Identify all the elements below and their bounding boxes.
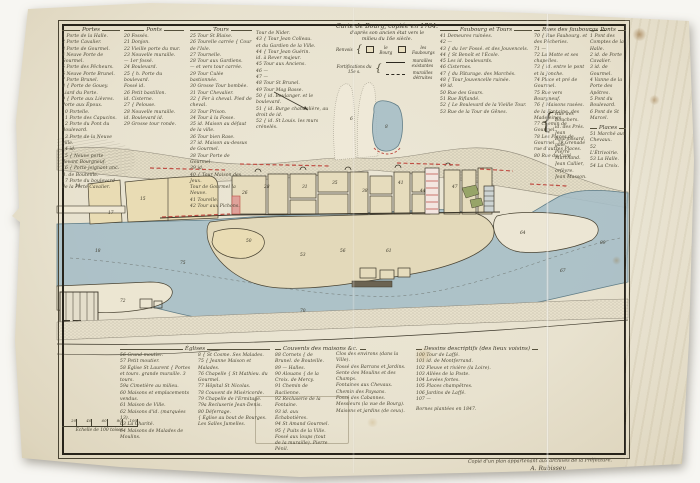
legend-item: 60 Maisons et emplacements vendus. (120, 391, 192, 404)
legend-header: Rues des faubourgs (534, 27, 588, 34)
bourg-swatch (366, 46, 374, 53)
pond (373, 101, 403, 154)
sand-spit (207, 212, 494, 288)
legend-item: 5 Porte des Pêcheurs. (62, 65, 120, 71)
map-number-label: 53 (300, 254, 306, 258)
legend-item: Sente des Moulins et des Champs. (336, 371, 412, 384)
dashed-line-sample (386, 74, 406, 75)
legend-item: 29 Tour Culée bastionnée. (190, 72, 252, 85)
legend-item: 4 Neuve Porte de Gourmel. (62, 53, 120, 66)
legend-item: 74 Place et pré de Gourmel. (534, 78, 588, 91)
map-number-label: 8 (385, 126, 388, 130)
legend-item: 100 (123, 419, 138, 426)
legend-item: Jean Callier, orfèvre. (555, 162, 594, 175)
legend-item: 28 Nouvelle muraille. (124, 110, 184, 116)
legend-item: 9 { Porte aux Lièvres. Porte aux Époux. (62, 97, 120, 110)
legend-item: 79a Recluserie Jean-Denis. (198, 403, 270, 409)
copyist-note: Copié d'un plan appartenant aux archives… (468, 458, 628, 474)
legend-item: 4 Vanne de la Porte des Apôtres. (590, 78, 626, 97)
legend-item: Jean Masson. (555, 175, 594, 181)
legend-header: Dessins descriptifs (des lieux voisins) (416, 346, 508, 353)
map-number-label: 44 (420, 190, 426, 194)
legend-item: 42 Tour aux Pichons. (190, 204, 252, 210)
legend-item: 30 Grosse Tour bombée. (190, 84, 252, 90)
legend-item: 75 Rue vers Bourgneuf. (534, 91, 588, 104)
legend-item: 2 id. de Porte Cavalier. (590, 53, 626, 66)
map-number-label: 31 (302, 186, 308, 190)
map-number-label: 67 (560, 270, 566, 274)
bornes-note: Bornes plantées en 1847. (416, 407, 508, 413)
brace-glyph: { (540, 112, 554, 134)
map-subtitle-2: milieu du 16e siècle. (336, 37, 438, 43)
map-number-label: 41 (398, 182, 404, 186)
legend-item: 26 Tourelle carrée { Cour de l'Isle. (190, 40, 252, 53)
legend-column-couvents-2: Clos des environs (dans la Ville).Fossé … (336, 352, 412, 415)
legend-header: Ponts (124, 27, 184, 34)
map-number-label: 72 (120, 300, 126, 304)
legend-item: Clos des environs (dans la Ville). (336, 352, 412, 365)
legend-column-tours: Tours 25 Tour St Blaise.26 Tourelle carr… (190, 27, 252, 210)
town-blocks (232, 168, 492, 214)
bridge-red (232, 168, 494, 214)
legend-header: Couvents des maisons &c. (275, 346, 331, 353)
walled-town (57, 163, 500, 224)
legend-item: 5 Pont du Boulevard. (590, 97, 626, 110)
scale-ticks: 20406080100 (62, 419, 138, 427)
stain (366, 418, 379, 427)
legend-item: 38 Tour Porte de Gourmel. (190, 154, 252, 167)
legend-item: 50 { id. Boulanger. et le boulevard. (256, 94, 330, 107)
green-patches (462, 185, 483, 208)
map-subtitle: d'après son ancien état vers le (336, 31, 438, 37)
line-samples: murailles existantes murailles détruites (386, 58, 438, 80)
paper-wrinkles (625, 0, 700, 483)
legend-item: 16 { Porte joignant anc. B. de Bouteille… (62, 166, 120, 179)
sample2-label: murailles détruites (407, 70, 438, 80)
map-number-label: 70 (300, 310, 306, 314)
scanned-map-photo: 1415172628313538414447505356616467707275… (0, 0, 700, 483)
legend-item: 43 { du 1er Fossé. et des Jouvencels. (440, 47, 532, 53)
map-number-label: 61 (386, 250, 392, 254)
stain (649, 95, 660, 105)
legend-item: 58 Église St Laurent { Portes et tours. … (120, 366, 192, 385)
legend-item: 40 { Tour Maison des Jeux. (190, 173, 252, 186)
map-number-label: 28 (264, 186, 270, 190)
legend-header: Ponts (590, 27, 626, 34)
river-lock (60, 292, 98, 328)
legend-column-ponts: Ponts 20 Fossés.21 Donjon.22 Vieille por… (124, 27, 184, 128)
legend-column-eglises: Églises 56 Grand moutier.57 Petit moutie… (120, 346, 270, 441)
legend-item: 13 Porte de la Neuve ville. (62, 135, 120, 148)
brace-glyph: { (375, 64, 381, 74)
legend-item: Tour de Gourmel la Neuve. (190, 185, 252, 198)
legend-item: 88 Cornets { de Brunel. de Bouteille. (275, 353, 331, 366)
legend-item: 29 Grosse tour ronde. (124, 122, 184, 128)
map-number-label: 75 (180, 262, 186, 266)
legend-column-portes: Portes 1 Porte de la Halle.2 Porte Caval… (62, 27, 120, 191)
legend-column-couvents: Couvents des maisons &c. 88 Cornets { de… (275, 346, 331, 454)
renvois-label: Renvois (336, 47, 353, 52)
solid-line-sample (386, 62, 405, 63)
map-number-label: 47 (452, 186, 458, 190)
scale-label: Échelle de 100 toises. (62, 428, 138, 434)
legend-item: 72 La Motte et ses chapelles. (534, 53, 588, 66)
legend-item: 15 { Neuve porte devant Bourgneuf. (62, 154, 120, 167)
legend-item: 35 id. Maison au défaut de la ville. (190, 122, 252, 135)
legend-item: Jean Bournissard, gale. (555, 131, 594, 150)
map-number-label: 89 (600, 242, 606, 246)
legend-item: 91 Chemin de Raclienne. (275, 384, 331, 397)
legend-item: 22 Vieille porte du mur. (124, 47, 184, 53)
legend-item: 53 Rue de la Tour de Gênes. (440, 110, 532, 116)
renvoi-b-label: les Faubourgs (409, 45, 438, 55)
stain (632, 28, 647, 41)
legend-item: 76 Chapelle { St Mathieu. du Gourmel. (198, 372, 270, 385)
legend-item: 32 { Fer à cheval. Pied de cheval. (190, 97, 252, 110)
river (57, 190, 628, 327)
legend-item: 75 { Jeanne Maison et Malades. (198, 359, 270, 372)
renvois-row: Renvois { le Bourg les Faubourgs (336, 45, 438, 55)
legend-item: 51 { id. Burge chandelière, au droit de … (256, 107, 330, 120)
legend-header: Tours (190, 27, 252, 34)
fortif-label: Fortifications du 15e s. (336, 64, 372, 74)
map-number-label: 15 (140, 198, 146, 202)
fortifications-key: Fortifications du 15e s. { murailles exi… (336, 58, 438, 80)
legend-item: Messieurs (la vue de Bourg). (336, 402, 412, 408)
legend-item: 90 Alouans { de la Croix. de Mercy. (275, 372, 331, 385)
legend-item: Maisons et jardins (de ceux). (336, 409, 412, 415)
legend-item: 52 { id. St Louis. les murs crénelés. (256, 119, 330, 132)
renvoi-a-label: le Bourg (377, 45, 395, 55)
map-paper-sheet: 1415172628313538414447505356616467707275… (0, 0, 700, 483)
sample1-label: murailles existantes (407, 58, 438, 68)
legend-column-faubourgs: Faubourg et Tours 41 Demeures ruinées.42… (440, 27, 532, 116)
map-number-label: 64 (520, 232, 526, 236)
signature-name: A. Rubissey (468, 464, 628, 474)
legend-item: 51 Marché aux Chevaux. (590, 132, 626, 145)
legend-item: 20 (62, 419, 77, 426)
river-island (494, 212, 599, 252)
legend-item: 1 Pont des Comptes de la Halle. (590, 34, 626, 53)
scale-bar: 20406080100 Échelle de 100 toises. (62, 419, 138, 434)
map-title-block: Carte de Bourg, copiée en 1784. d'après … (336, 23, 438, 80)
spit-field (212, 229, 264, 259)
legend-group-noms: { Rue des Bouchers.id. des Prés.Jean Bou… (540, 112, 594, 181)
legend-item: 94 St Amand Gourmel. (275, 422, 331, 428)
legend-item: 6 Pont de St Marcel. (590, 110, 626, 123)
stain (612, 256, 621, 265)
legend-item: 52 { Le Boulevard de la Vieille Tour. (440, 103, 532, 109)
map-number-label: 56 (340, 250, 346, 254)
legend-item: 73 { id. entre le pont et la Jonche. (534, 65, 588, 78)
legend-column-tours-2: Tour de Nider.43 { Tour Jean Colleau.et … (256, 31, 330, 132)
legend-column-bureau: Dessins descriptifs (des lieux voisins) … (416, 346, 508, 414)
legend-header: Portes (62, 27, 120, 34)
legend-item: 12 Porte du Pont du Boulevard. (62, 122, 120, 135)
map-number-label: 35 (332, 182, 338, 186)
legend-item: 37 id. Maison au-dessus de Gourmel. (190, 141, 252, 154)
legend-item: 95 { Puits de la Ville. Fossé aux loups … (275, 429, 331, 454)
map-number-label: 18 (95, 250, 101, 254)
map-number-label: 17 (108, 212, 114, 216)
legend-item: 54 La Croix. (590, 164, 626, 170)
legend-item: 107 — (416, 397, 508, 403)
brace-glyph: { (356, 45, 362, 55)
legend-item: 8 { Porte de Gouey. Liard du Porte. (62, 84, 120, 97)
legend-item: 3 id. de Gourmel. (590, 65, 626, 78)
map-title: Carte de Bourg, copiée en 1784. (336, 23, 438, 31)
legend-item: Pierre Marchand. (555, 150, 594, 163)
paper-shadow: 1415172628313538414447505356616467707275… (0, 0, 700, 483)
legend-item: 93 id. aux Échabotières. (275, 410, 331, 423)
legend-item: 40 (77, 419, 92, 426)
legend-item: 17 Porte du boulevard de la Porte Cavali… (62, 179, 120, 192)
map-number-label: 6 (350, 118, 353, 122)
legend-item: 70 { Rue Faubourg. et des Pêcheries. (534, 34, 588, 47)
map-number-label: 38 (362, 190, 368, 194)
legend-item: 60 (92, 419, 107, 426)
legend-item: 80 (108, 419, 123, 426)
legend-item: 92 Recluserie de la Fontaine. (275, 397, 331, 410)
legend-header: Faubourg et Tours (440, 27, 532, 34)
legend-item: 25 { h. Porte du boulevard. (124, 72, 184, 85)
spit-buildings (352, 268, 410, 287)
legend-header: Églises (120, 346, 270, 353)
legend-column-ponts-places: Ponts 1 Pont des Comptes de la Halle.2 i… (590, 27, 626, 170)
legend-item: 52 L'Étrivoirie. (590, 145, 626, 158)
legend-item: { Église au bout de Bourges. Les Salles … (198, 416, 270, 429)
faubourg-swatch (398, 46, 406, 53)
left-island (57, 282, 172, 312)
map-number-label: 50 (246, 240, 252, 244)
legend-item: Fossé des Barrans et Jardins. (336, 365, 412, 371)
legend-item: Rue des Bouchers. (555, 112, 594, 125)
